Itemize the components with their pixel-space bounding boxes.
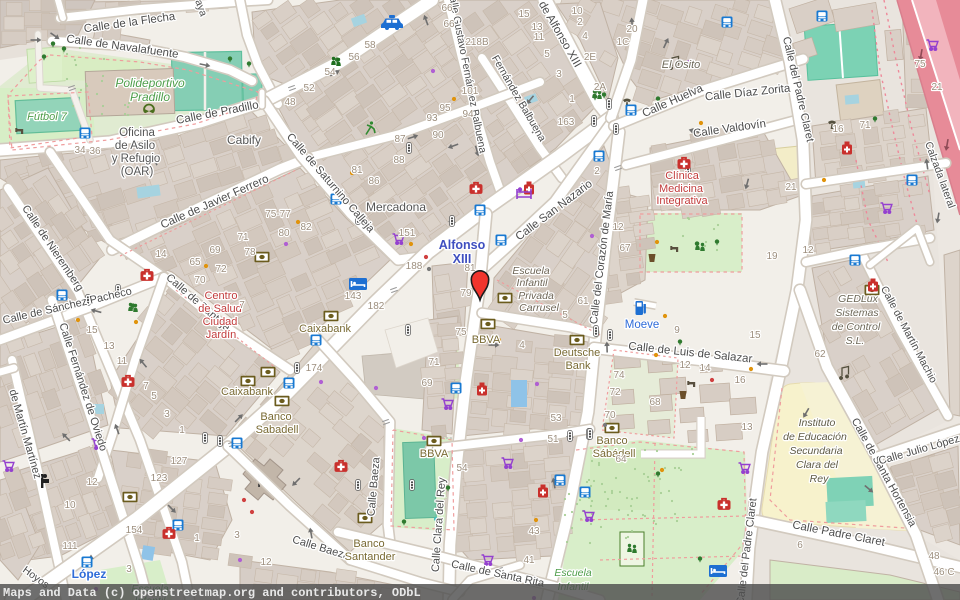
svg-text:43: 43 [528,526,540,537]
svg-text:75: 75 [914,59,926,70]
svg-text:154: 154 [126,525,143,536]
svg-text:2: 2 [577,17,583,28]
svg-text:151: 151 [399,228,416,239]
svg-text:Moeve: Moeve [625,319,660,331]
svg-text:71: 71 [859,120,871,131]
svg-text:Banco: Banco [260,411,291,423]
svg-text:Carrusel: Carrusel [519,302,559,314]
svg-text:79: 79 [460,288,472,299]
svg-text:14: 14 [155,249,167,260]
svg-text:1: 1 [569,94,575,105]
svg-text:Banco: Banco [596,435,627,447]
svg-text:87: 87 [394,134,406,145]
svg-text:16: 16 [734,375,746,386]
svg-text:Santander: Santander [345,551,396,563]
svg-text:34: 34 [74,145,86,156]
svg-text:123: 123 [151,473,168,484]
svg-text:70: 70 [604,410,616,421]
svg-text:Escuela: Escuela [512,265,550,277]
svg-text:72: 72 [215,264,227,275]
svg-text:12: 12 [612,222,624,233]
svg-text:94: 94 [462,109,474,120]
svg-text:Ciudad: Ciudad [203,316,238,328]
svg-text:7: 7 [143,381,149,392]
svg-text:5: 5 [544,49,550,60]
svg-text:Bank: Bank [565,360,591,372]
svg-text:54: 54 [324,67,336,78]
svg-text:S.L.: S.L. [846,335,865,347]
svg-text:188: 188 [406,261,423,272]
svg-text:Privada: Privada [518,290,554,302]
svg-text:de Asilo: de Asilo [115,140,155,152]
svg-text:163: 163 [558,117,575,128]
svg-text:Oficina: Oficina [119,127,155,139]
svg-text:9: 9 [674,325,680,336]
svg-text:36: 36 [89,146,101,157]
svg-text:BBVA: BBVA [472,334,501,346]
svg-text:21: 21 [931,82,943,93]
svg-text:Integrativa: Integrativa [656,195,708,207]
svg-text:52: 52 [303,83,315,94]
svg-text:81: 81 [351,165,363,176]
svg-text:Infantil: Infantil [517,277,549,289]
svg-text:Deutsche: Deutsche [554,347,600,359]
svg-text:Fútbol 7: Fútbol 7 [27,111,68,123]
svg-text:19: 19 [766,251,778,262]
svg-text:Polideportivo: Polideportivo [115,76,185,90]
svg-text:71: 71 [428,357,440,368]
svg-text:Pradillo: Pradillo [130,90,170,104]
svg-text:56: 56 [348,52,360,63]
svg-text:174: 174 [306,363,323,374]
svg-text:Escuela: Escuela [554,567,592,579]
svg-text:78: 78 [244,247,256,258]
svg-text:5: 5 [151,391,157,402]
svg-text:El Osito: El Osito [662,59,701,71]
svg-text:69: 69 [209,245,221,256]
svg-text:Clara del: Clara del [796,459,839,471]
svg-text:14: 14 [699,363,711,374]
svg-text:13: 13 [103,341,115,352]
svg-text:y Refugio: y Refugio [112,153,161,165]
svg-text:54: 54 [456,463,468,474]
svg-text:10: 10 [64,500,76,511]
svg-text:1: 1 [194,533,200,544]
svg-text:Mercadona: Mercadona [366,200,426,214]
svg-text:46 C: 46 C [933,567,954,578]
svg-text:1: 1 [179,425,185,436]
svg-text:48: 48 [928,551,940,562]
svg-text:101: 101 [462,86,479,97]
svg-text:de Control: de Control [832,321,881,333]
svg-text:de Educación: de Educación [783,431,847,443]
svg-text:4: 4 [582,31,588,42]
svg-text:80: 80 [278,228,290,239]
svg-text:BBVA: BBVA [420,448,449,460]
svg-text:GEDLux: GEDLux [838,293,878,305]
svg-text:12: 12 [802,245,814,256]
svg-text:3: 3 [126,564,132,575]
svg-text:51: 51 [547,434,559,445]
svg-text:11: 11 [117,356,128,367]
svg-text:58: 58 [364,40,376,51]
svg-text:61: 61 [577,296,589,307]
svg-text:15: 15 [86,325,98,336]
svg-text:Caixabank: Caixabank [221,386,273,398]
svg-text:111: 111 [62,541,78,552]
svg-text:Maps and Data (c) openstreetma: Maps and Data (c) openstreetmap.org and … [3,586,421,600]
svg-text:10: 10 [571,6,583,17]
svg-text:Centro: Centro [204,290,237,302]
svg-text:21: 21 [785,182,797,193]
svg-text:90: 90 [432,130,444,141]
svg-text:69: 69 [421,378,433,389]
svg-text:64: 64 [615,454,627,465]
svg-text:López: López [72,567,107,581]
svg-text:74: 74 [613,370,625,381]
svg-text:66: 66 [441,3,453,14]
svg-text:70: 70 [194,275,206,286]
svg-text:143: 143 [345,291,362,302]
svg-text:88: 88 [393,155,405,166]
svg-text:65: 65 [189,257,201,268]
svg-text:6: 6 [797,540,803,551]
svg-text:3: 3 [164,409,170,420]
svg-text:66: 66 [443,19,455,30]
svg-text:Banco: Banco [353,538,384,550]
svg-text:Jardín: Jardín [206,329,237,341]
svg-text:3: 3 [234,530,240,541]
svg-text:71: 71 [237,232,249,243]
svg-text:82: 82 [300,222,312,233]
svg-text:48: 48 [284,97,296,108]
svg-text:13: 13 [741,422,753,433]
svg-text:75: 75 [455,327,467,338]
svg-text:72: 72 [609,387,621,398]
svg-text:12: 12 [86,477,98,488]
svg-text:Sistemas: Sistemas [835,307,879,319]
svg-text:16: 16 [832,124,844,135]
svg-text:67: 67 [619,243,631,254]
svg-text:2: 2 [594,166,600,177]
svg-text:20: 20 [626,24,638,35]
svg-text:182: 182 [368,301,385,312]
svg-text:Medicina: Medicina [659,183,704,195]
svg-text:Sábádell: Sábádell [593,448,636,460]
svg-text:2A: 2A [594,82,607,93]
svg-text:95: 95 [439,103,451,114]
svg-text:Sabadell: Sabadell [256,424,299,436]
svg-text:218B: 218B [465,37,489,48]
svg-text:Caixabank: Caixabank [299,323,351,335]
svg-text:1C: 1C [617,37,630,48]
svg-text:Cabify: Cabify [227,133,261,147]
svg-text:3: 3 [556,69,562,80]
svg-text:12: 12 [260,557,272,568]
svg-text:15: 15 [518,9,530,20]
svg-text:75-77: 75-77 [265,209,291,220]
svg-text:2E: 2E [584,52,597,63]
svg-text:15: 15 [749,330,761,341]
svg-text:68: 68 [649,397,661,408]
svg-text:Rey: Rey [810,473,829,485]
svg-text:86: 86 [368,176,380,187]
svg-text:93: 93 [426,113,438,124]
svg-text:de Salud: de Salud [198,303,241,315]
svg-text:11: 11 [534,32,545,43]
svg-text:Secundaria: Secundaria [789,445,842,457]
svg-text:4: 4 [519,340,525,351]
svg-text:Alfonso: Alfonso [439,238,486,252]
svg-text:12: 12 [679,360,691,371]
svg-text:62: 62 [814,349,826,360]
svg-text:Instituto: Instituto [799,417,836,429]
svg-text:(OAR): (OAR) [121,166,154,178]
svg-text:7: 7 [239,300,245,311]
svg-text:5: 5 [562,310,568,321]
svg-text:41: 41 [523,555,535,566]
svg-text:53: 53 [550,413,562,424]
svg-text:127: 127 [171,456,188,467]
svg-text:Clínica: Clínica [665,170,700,182]
